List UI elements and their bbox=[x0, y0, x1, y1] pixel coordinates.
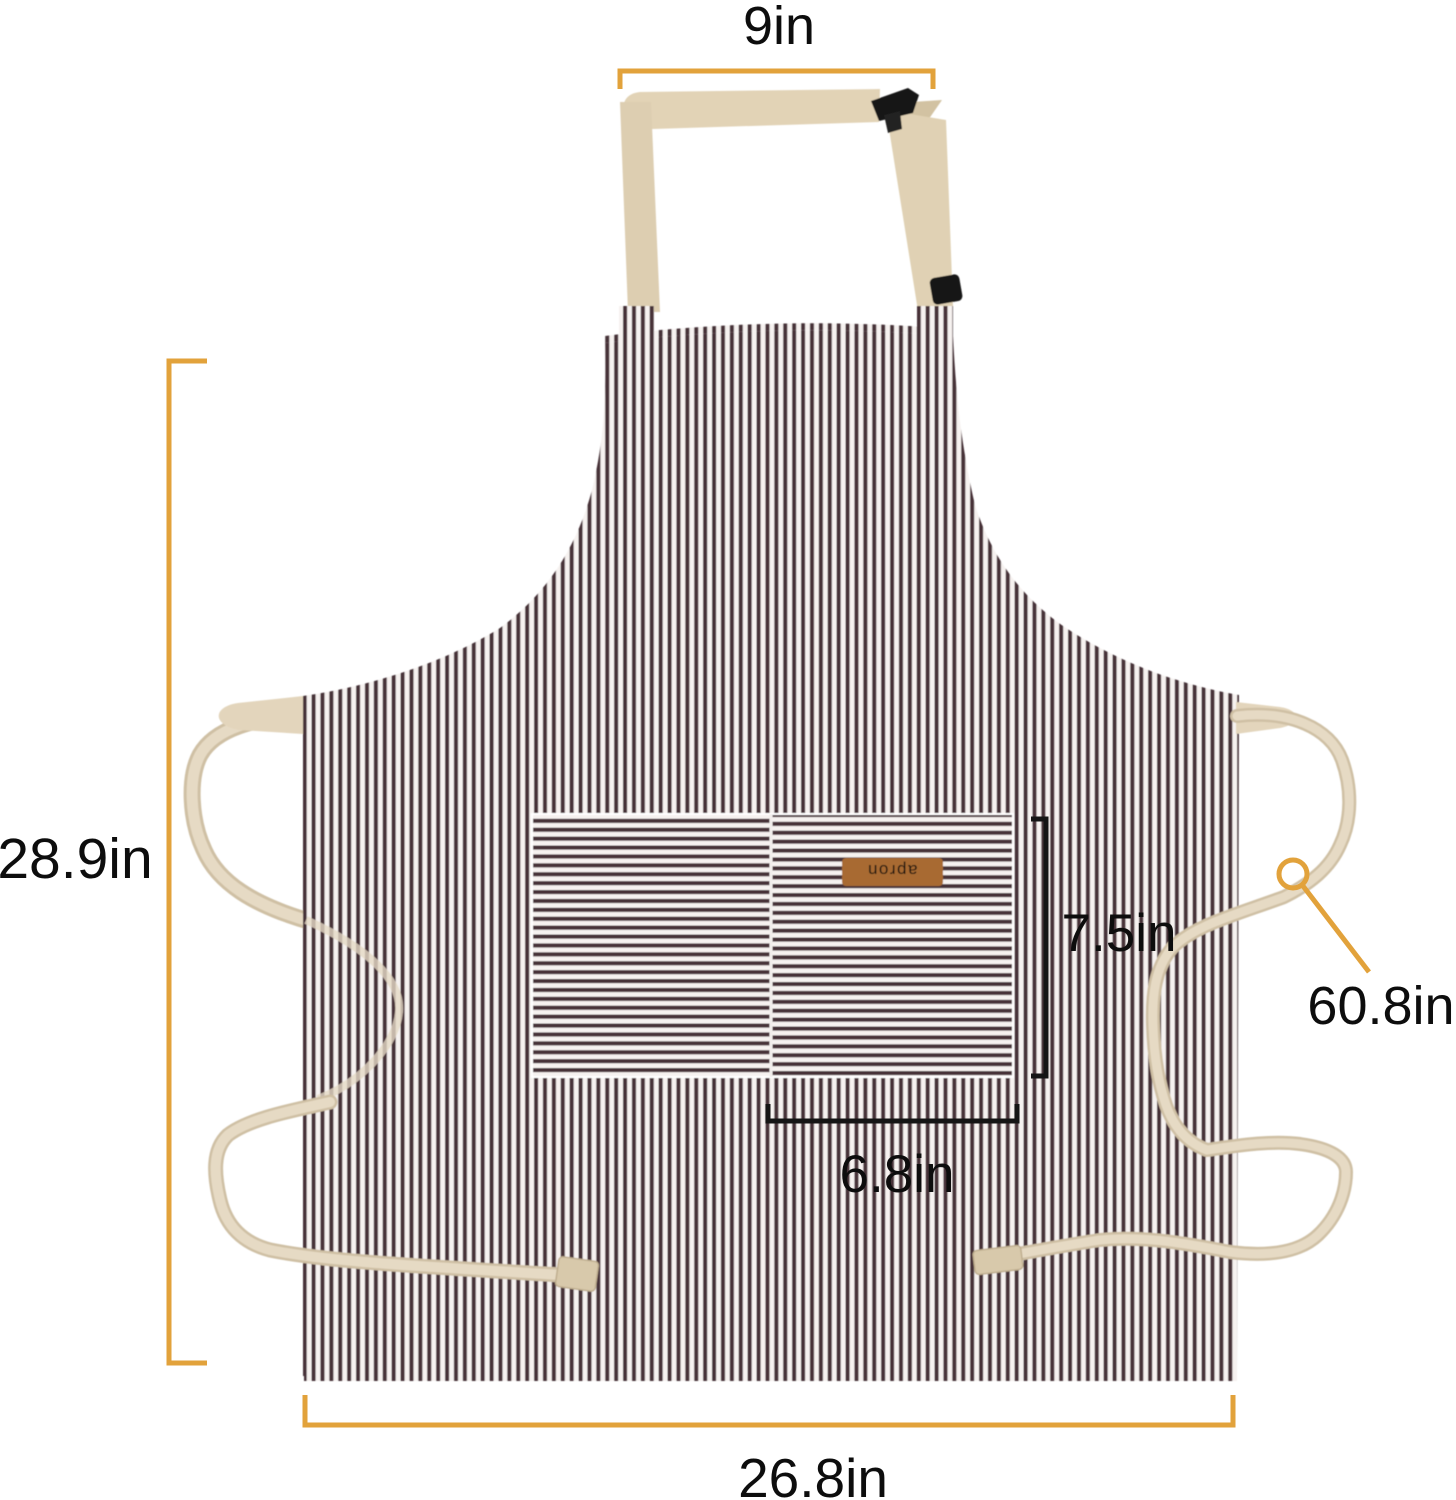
svg-text:9in: 9in bbox=[743, 0, 815, 56]
svg-text:7.5in: 7.5in bbox=[1062, 904, 1177, 963]
svg-text:apron: apron bbox=[867, 861, 918, 880]
svg-text:28.9in: 28.9in bbox=[0, 827, 153, 891]
svg-text:60.8in: 60.8in bbox=[1307, 976, 1454, 1036]
svg-text:6.8in: 6.8in bbox=[840, 1145, 955, 1204]
svg-text:26.8in: 26.8in bbox=[738, 1447, 888, 1500]
